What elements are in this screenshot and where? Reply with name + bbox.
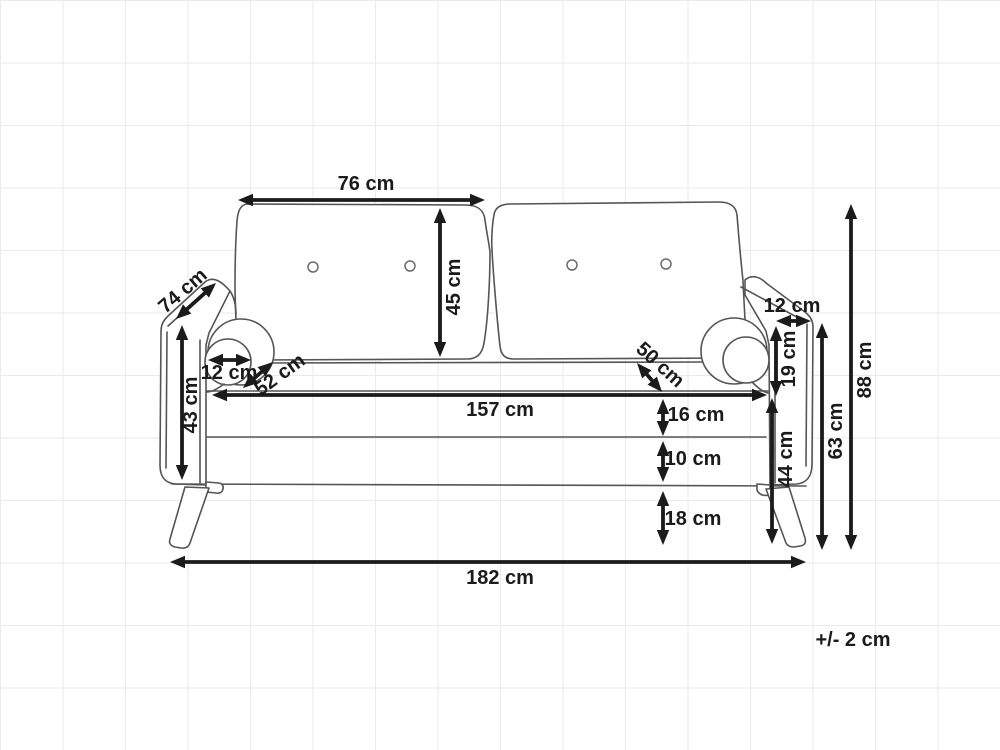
arrowhead — [657, 530, 669, 545]
dimension-label: 63 cm — [825, 403, 847, 460]
left-armrest-side-seam — [166, 332, 167, 468]
dimension-label: 43 cm — [180, 377, 202, 434]
diagram-svg: 76 cm45 cm74 cm43 cm12 cm52 cm157 cm50 c… — [0, 0, 1000, 750]
sofa-dimension-diagram: 76 cm45 cm74 cm43 cm12 cm52 cm157 cm50 c… — [0, 0, 1000, 750]
dimension-label: 157 cm — [466, 399, 534, 421]
dimension-seat-cushion-thickness: 16 cm — [657, 399, 725, 436]
cushion-button — [567, 260, 577, 270]
dimension-label: 76 cm — [338, 173, 395, 195]
arrowhead — [845, 535, 857, 550]
dimension-base-frame-height: 10 cm — [657, 441, 722, 482]
arrowhead — [791, 556, 806, 568]
dimension-label: 44 cm — [775, 431, 797, 488]
arrowhead — [657, 491, 669, 506]
front-leg-left — [170, 487, 209, 548]
dimension-label: 88 cm — [854, 342, 876, 399]
dimension-label: 182 cm — [466, 567, 534, 589]
tolerance-note: +/- 2 cm — [815, 629, 890, 651]
cushion-button — [405, 261, 415, 271]
seat-surface-line — [267, 362, 703, 363]
dimension-label: 16 cm — [668, 404, 725, 426]
arrowhead — [470, 194, 485, 206]
cushion-button — [308, 262, 318, 272]
dimension-backrest-cushion-width: 76 cm — [238, 173, 485, 206]
sofa-bottom-edge — [172, 484, 806, 486]
dimension-label: 19 cm — [778, 331, 800, 388]
dimension-total-height: 88 cm — [845, 204, 876, 550]
dimension-label: 12 cm — [764, 295, 821, 317]
dimension-armrest-floor-height: 63 cm — [816, 323, 847, 550]
arrowhead — [170, 556, 185, 568]
bolster-right-front — [723, 337, 769, 383]
dimension-total-width: 182 cm — [170, 556, 806, 589]
dimension-label: 45 cm — [443, 259, 465, 316]
arrowhead — [816, 323, 828, 338]
dimension-leg-height: 18 cm — [657, 491, 722, 545]
arrowhead — [816, 535, 828, 550]
cushion-button — [661, 259, 671, 269]
arrowhead — [845, 204, 857, 219]
arrowhead — [766, 529, 778, 544]
dimension-label: 18 cm — [665, 508, 722, 530]
dimension-label: 10 cm — [665, 448, 722, 470]
dimension-armrest-above-seat: 19 cm — [770, 326, 800, 396]
right-armrest-side-seam — [806, 324, 807, 466]
